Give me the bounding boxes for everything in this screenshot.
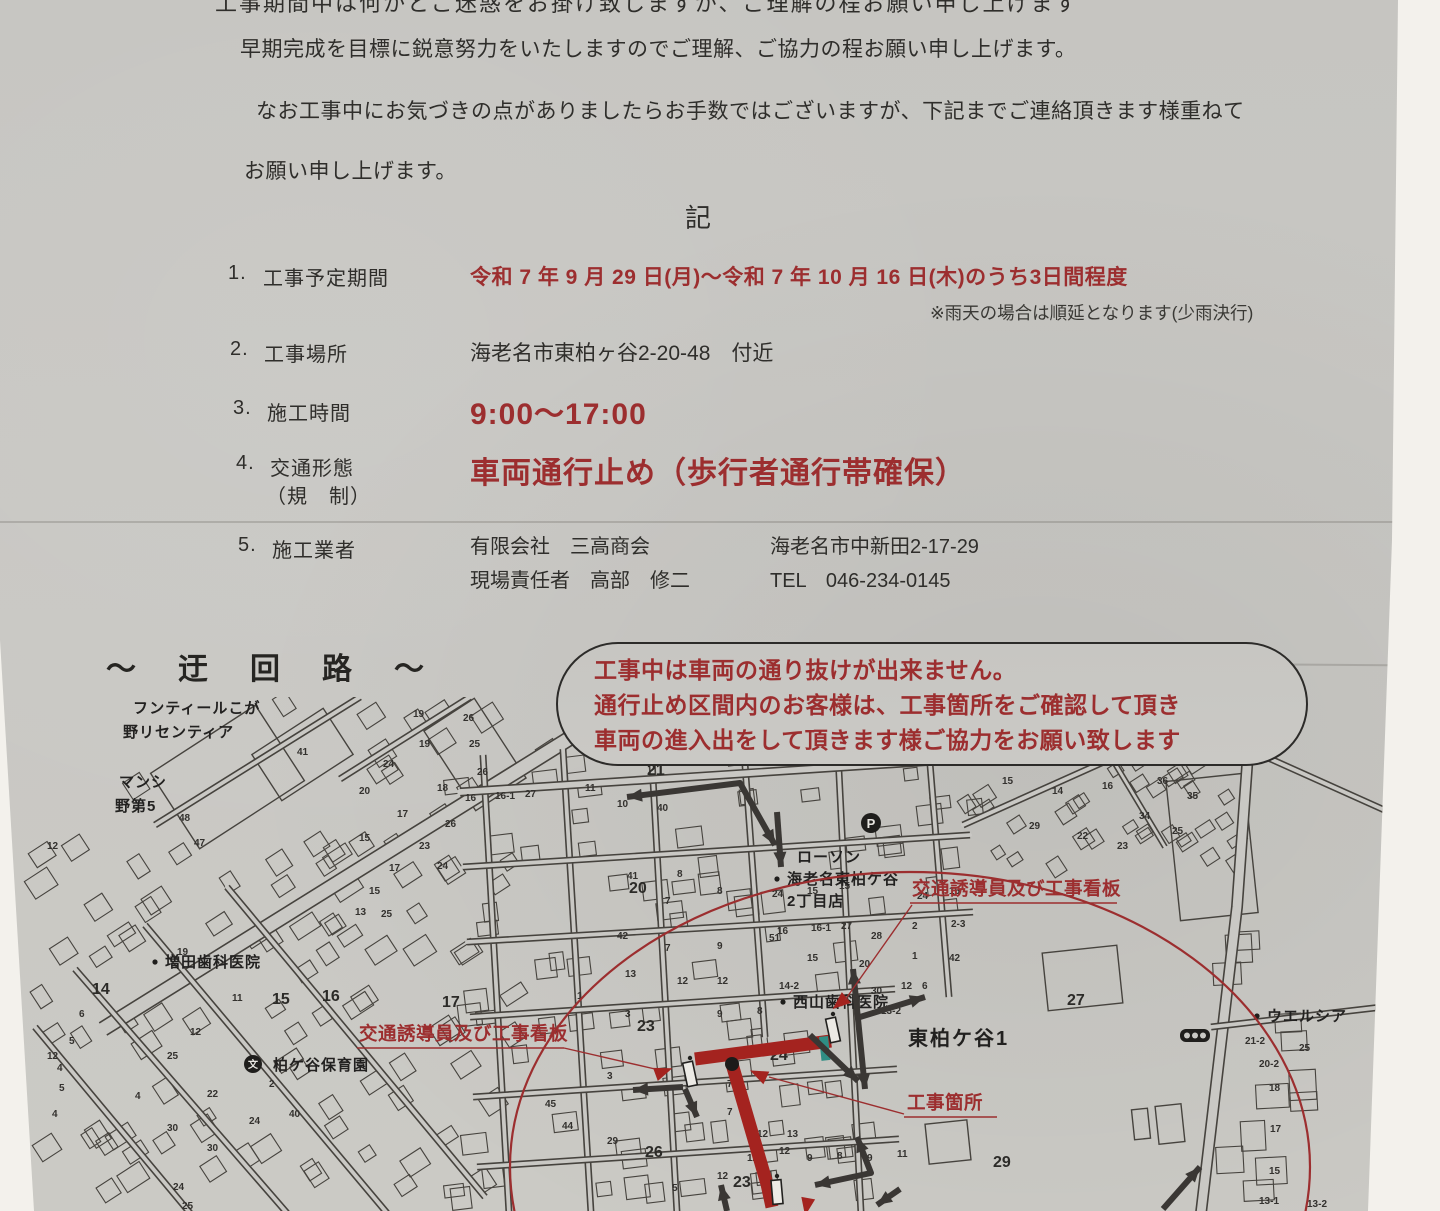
map-lot-number: 17 [442,994,460,1011]
balloon-line-3: 車両の進入出をして頂きます様ご協力をお願い致します [594,723,1306,758]
map-lot-number: 23 [733,1174,751,1191]
map-lot-number: 15 [272,991,290,1008]
map-lot-number: 9 [807,1153,813,1164]
map-lot-number: 8 [677,869,683,880]
item5-manager: 現場責任者 高部 修二 [470,564,690,593]
item4-label: 交通形態 [270,452,354,481]
map-lot-number: 4 [135,1091,141,1102]
map-place-label: 東柏ケ谷1 [908,1026,1009,1050]
map-lot-number: 8 [717,886,723,897]
map-building [596,1181,612,1196]
item1-number: 1. [228,262,247,285]
map-building [692,960,717,980]
map-building [1215,812,1233,830]
intro-line-2: なお工事中にお気づきの点がありましたらお手数ではございますが、下記までご連絡頂き… [256,95,1245,125]
map-building [1123,820,1139,835]
map-building [451,1051,481,1080]
map-lot-number: 24 [173,1182,185,1193]
map-building [1289,1069,1317,1100]
map-lot-number: 15 [1269,1166,1281,1177]
map-lot-number: 17 [397,809,409,820]
traffic-signal-lamp [1192,1033,1198,1039]
item5-address: 海老名市中新田2-17-29 [770,530,979,559]
map-lot-number: 40 [657,803,669,814]
map-road [927,727,949,997]
map-lot-number: 29 [607,1136,619,1147]
map-lot-number: 27 [525,789,537,800]
top-clipped-line: 工事期間中は何かとご迷惑をお掛け致しますが、ご理解の程お願い申し上げます [215,0,1079,13]
map-lot-number: 12 [717,976,729,987]
map-large-building [1131,1108,1150,1140]
map-lot-number: 23 [419,841,431,852]
map-lot-number: 20 [359,786,371,797]
map-lot-number: 7 [665,943,671,954]
map-building [403,934,436,966]
map-road [340,697,470,779]
closure-junction-dot [725,1057,739,1071]
map-lot-number: 14 [92,981,110,998]
item5-tel: TEL 046-234-0145 [770,564,951,593]
map-lot-number: 6 [79,1009,85,1020]
map-building [444,1183,465,1198]
map-annotation-label: 交通誘導員及び工事看板 [912,878,1121,899]
map-lot-number: 16-1 [811,923,831,934]
map-lot-number: 6 [922,981,928,992]
map-lot-number: 40 [289,1109,301,1120]
map-building [24,867,58,899]
map-lot-number: 26 [463,713,475,724]
map-building [153,1132,175,1154]
map-building [801,788,820,802]
school-icon-glyph: 文 [248,1058,259,1071]
map-lot-number: 20-2 [1259,1059,1279,1070]
map-lot-number: 3 [625,1009,631,1020]
item3-value: 9:00～17:00 [470,389,647,433]
map-building [903,767,918,781]
detour-arrowhead [773,852,786,867]
map-building [685,1123,705,1142]
map-building [96,1178,121,1203]
detour-section-title: ～ 迂 回 路 ～ [106,644,430,688]
map-lot-number: 8 [757,1006,763,1017]
map-building [84,893,112,921]
map-lot-number: 15 [369,886,381,897]
map-building [461,1132,489,1155]
map-building [549,952,565,971]
map-lot-number: 17 [1270,1124,1282,1135]
map-lot-number: 30 [167,1123,179,1134]
map-building [30,985,52,1009]
map-lot-number: 47 [194,838,206,849]
map-lot-number: 12 [190,1027,202,1038]
map-lot-number: 1 [912,951,918,962]
map-building [1240,1120,1266,1151]
item5-label: 施工業者 [272,534,356,563]
map-building [325,1116,349,1139]
map-lot-number: 12 [717,1171,729,1182]
map-building [266,849,293,876]
map-lot-number: 2-3 [951,919,966,930]
map-building [169,843,192,865]
map-lot-number: 15 [1002,776,1014,787]
map-lot-number: 4 [57,1063,63,1074]
map-lot-number: 5 [69,1036,75,1047]
balloon-line-2: 通行止め区間内のお客様は、工事箇所をご確認して頂き [594,688,1306,723]
map-lot-number: 5 [672,1183,678,1194]
map-place-label: マンシ [119,774,167,791]
intro-line-1: 早期完成を目標に鋭意努力をいたしますのでご理解、ご協力の程お願い申し上げます。 [240,33,1076,63]
map-place-label: 増田歯科医院 [165,953,261,971]
map-road [563,749,591,1211]
map-building [535,957,558,979]
map-building [49,937,78,965]
map-building [206,912,233,936]
map-lot-number: 26 [477,767,489,778]
map-lot-number: 12 [779,1146,791,1157]
map-building [357,702,385,729]
map-building [720,1003,741,1022]
item2-number: 2. [230,338,249,361]
map-lot-number: 29 [993,1154,1011,1171]
map-building [1046,856,1067,878]
map-building [464,988,489,1012]
notice-paper: 工事期間中は何かとご迷惑をお掛け致しますが、ご理解の程お願い申し上げます 早期完… [0,0,1440,1211]
map-building [316,942,339,966]
map-lot-number: 35 [1187,791,1199,802]
map-lot-number: 41 [627,871,639,882]
map-building [450,1186,472,1210]
guard-figure-icon [831,1012,835,1016]
map-building [61,834,89,861]
map-building [1073,793,1089,809]
map-place-label: ウエルシア [1267,1008,1347,1025]
map-lot-number: 24 [383,759,395,770]
map-lot-number: 29 [1029,821,1041,832]
item3-number: 3. [233,397,252,420]
map-lot-number: 12 [901,981,913,992]
map-lot-number: 22 [1077,831,1089,842]
map-place-label: 野リセンティア [123,724,234,741]
map-building [304,831,330,856]
map-lot-number: 12 [677,976,689,987]
map-lot-number: 2 [269,1079,275,1090]
map-annotation-label: 工事箇所 [907,1092,983,1113]
map-lot-number: 15 [807,953,819,964]
map-lot-number: 9 [717,941,723,952]
map-large-building [1155,1104,1185,1145]
map-building [916,803,943,825]
map-lot-number: 15 [359,833,371,844]
map-place-label: 柏ケ谷保育園 [273,1056,369,1074]
item4-value: 車両通行止め（歩行者通行帯確保） [470,448,966,492]
map-lot-number: 42 [617,931,629,942]
map-lot-number: 8 [837,1151,843,1162]
intro-line-3: お願い申し上げます。 [244,155,457,185]
item1-note: ※雨天の場合は順延となります(少雨決行) [930,300,1253,325]
map-building [680,1179,706,1197]
map-building [32,1133,62,1162]
top-clipped-text: 工事期間中は何かとご迷惑をお掛け致しますが、ご理解の程お願い申し上げます [215,0,1079,13]
notice-balloon: 工事中は車両の通り抜けが出来ません。 通行止め区間内のお客様は、工事箇所をご確認… [556,642,1308,766]
map-building [869,897,886,915]
item3-label: 施工時間 [267,397,351,426]
map-building [1290,1092,1318,1112]
map-lot-number: 13 [787,1129,799,1140]
map-building [89,946,112,967]
map-annotation-label: 交通誘導員及び工事看板 [359,1023,568,1044]
guard-figure-icon [775,1174,779,1178]
item5-company: 有限会社 三高商会 [470,530,650,559]
map-building [769,1120,784,1135]
map-building [428,728,456,755]
map-lot-number: 23 [637,1018,655,1035]
map-building [358,1145,376,1163]
map-lot-number: 12 [47,841,59,852]
map-building [407,903,427,924]
map-lot-number: 25 [1299,1043,1311,1054]
map-building [323,840,345,863]
map-lot-number: 18 [1269,1083,1281,1094]
map-building [271,875,295,898]
item1-label: 工事予定期間 [263,262,389,291]
map-lot-number: 25 [182,1201,194,1211]
map-lot-number: 34 [1139,811,1151,822]
map-lot-number: 16 [777,926,789,937]
map-building [572,808,589,823]
map-lot-number: 19 [413,709,425,720]
map-lot-number: 13 [355,907,367,918]
map-building [500,982,528,1006]
item4-number: 4. [236,452,255,475]
map-lot-number: 26 [445,819,457,830]
map-lot-number: 13-2 [1307,1199,1327,1210]
map-road [743,737,765,1037]
map-building [645,1182,665,1203]
item2-label: 工事場所 [264,338,348,367]
map-building [119,925,146,952]
map-building [200,1156,227,1182]
detour-map: 19262519262420181616-1271726152324171513… [15,697,1400,1211]
construction-sign [771,1180,783,1205]
map-building [973,784,997,807]
map-lot-number: 11 [232,993,243,1004]
map-building [578,841,596,857]
place-bullet [774,876,779,881]
map-lot-number: 25 [469,739,481,750]
detour-arrowhead [909,995,925,1007]
map-building [389,1053,416,1080]
map-building [251,1134,282,1164]
map-lot-number: 22 [207,1089,219,1100]
map-lot-number: 48 [179,813,191,824]
map-lot-number: 3 [607,1071,613,1082]
map-lot-number: 7 [727,1107,733,1118]
map-building [711,1120,728,1143]
item4-label-line2: （規 制） [266,480,371,509]
map-lot-number: 14-2 [779,981,799,992]
map-lot-number: 13 [625,969,637,980]
map-lot-number: 44 [562,1121,574,1132]
paper-fold-line [0,521,1398,523]
map-place-label: 野第5 [115,797,156,815]
map-lot-number: 2 [912,921,918,932]
map-building [81,1128,101,1149]
map-lot-number: 23 [1117,841,1129,852]
map-lot-number: 27 [841,921,853,932]
map-building [1218,789,1234,805]
map-lot-number: 16 [1102,781,1114,792]
map-building [1007,815,1026,834]
map-lot-number: 16 [322,988,340,1005]
map-road [1255,752,1400,817]
map-lot-number: 25 [381,909,393,920]
map-large-building [925,1120,971,1164]
map-lot-number: 11 [897,1149,908,1160]
map-lot-number: 45 [545,1099,557,1110]
map-building [400,1148,431,1177]
map-lot-number: 5 [59,1083,65,1094]
map-building [779,1084,800,1107]
map-building [365,935,397,965]
item1-value: 令和 7 年 9 月 29 日(月)～令和 7 年 10 月 16 日(木)のう… [470,261,1128,291]
map-building [941,847,960,869]
map-lot-number: 16 [465,793,477,804]
map-building [272,697,296,717]
map-lot-number: 30 [207,1143,219,1154]
map-lot-number: 13-1 [1259,1196,1279,1207]
map-lot-number: 24 [249,1116,261,1127]
map-lot-number: 16-1 [495,791,515,802]
balloon-line-1: 工事中は車両の通り抜けが出来ません。 [594,653,1306,688]
map-road [477,1139,899,1167]
map-lot-number: 19 [419,739,431,750]
annotation-leader-line [769,1077,904,1114]
map-lot-number: 4 [52,1109,58,1120]
map-lot-number: 12 [47,1051,59,1062]
map-building [394,1174,417,1196]
map-lot-number: 25 [1172,826,1184,837]
map-lot-number: 36 [1157,776,1169,787]
closed-road-segment [695,1041,831,1059]
map-lot-number: 21-2 [1245,1036,1265,1047]
map-building [285,1022,307,1045]
map-lot-number: 25 [167,1051,179,1062]
map-building [1200,847,1219,866]
map-building [676,826,704,848]
item5-number: 5. [238,534,257,557]
map-building [608,874,629,891]
map-place-label: フンティールこが [133,699,260,717]
map-lot-number: 7 [665,896,671,907]
map-lot-number: 41 [297,747,309,758]
map-building [1007,852,1023,867]
traffic-signal-lamp [1184,1033,1190,1039]
map-lot-number: 27 [1067,992,1085,1009]
map-lot-number: 24 [437,861,449,872]
guard-figure-icon [688,1056,692,1060]
traffic-signal-lamp [1200,1033,1206,1039]
map-lot-number: 14 [1052,786,1064,797]
map-lot-number: 28 [871,931,883,942]
place-bullet [152,959,157,964]
map-lot-number: 26 [645,1144,663,1161]
map-lot-number: 20 [859,959,871,970]
map-lot-number: 18 [437,783,449,794]
map-lot-number: 20 [629,880,647,897]
map-lot-number: 9 [717,1009,723,1020]
map-lot-number: 10 [617,799,629,810]
item2-value: 海老名市東柏ヶ谷2-20-48 付近 [470,337,773,367]
map-road [75,969,287,1211]
map-place-label: ローソン [797,849,861,866]
section-heading-ki: 記 [0,198,1400,235]
map-building [127,854,150,879]
map-building [566,755,586,773]
parking-icon-glyph: P [867,816,876,831]
red-arrow-marker [798,1197,815,1211]
map-building [1216,1146,1244,1174]
map-building [1195,820,1215,838]
map-building [672,879,695,895]
map-lot-number: 17 [389,863,401,874]
map-lot-number: 11 [585,783,596,794]
place-bullet [780,999,785,1004]
map-place-label: 2丁目店 [787,892,844,910]
map-building [117,1162,150,1193]
map-lot-number: 42 [949,953,961,964]
map-building [991,845,1006,860]
